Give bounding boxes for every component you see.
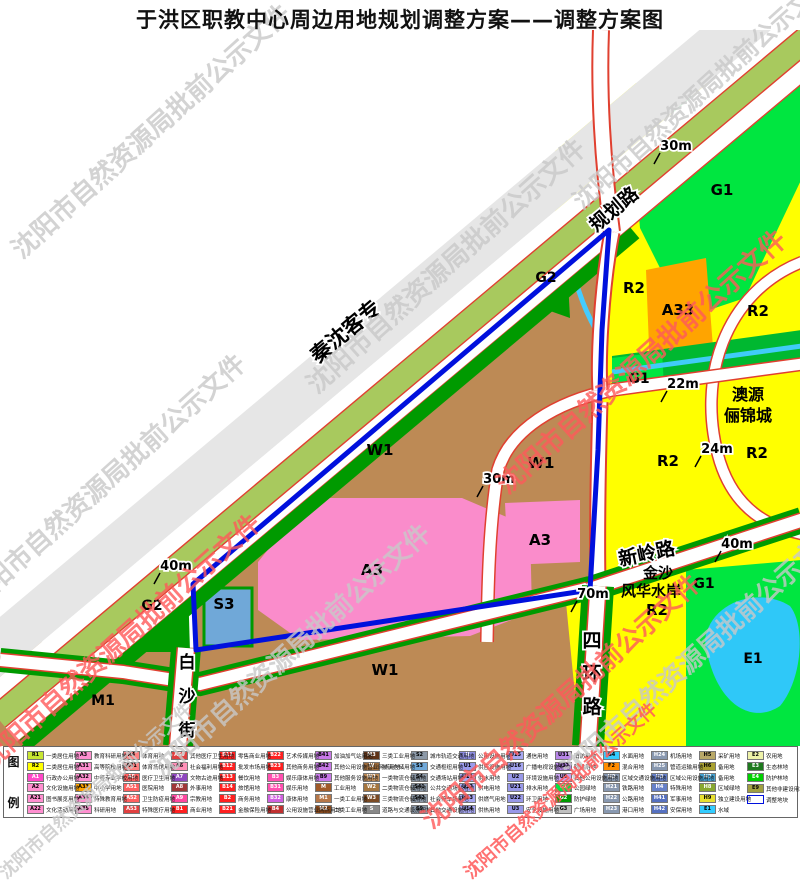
legend-entry-label: 文化活动用地: [46, 805, 79, 813]
legend-entry: A4体育用地: [123, 750, 171, 761]
legend-entry: H8区域绿地: [699, 782, 747, 793]
zone-label: S3: [213, 595, 234, 613]
legend-entry: A22文化活动用地: [27, 804, 75, 815]
legend-entry-label: 区域交通设施用地: [622, 773, 666, 781]
legend-entry-label: 军事用地: [670, 795, 692, 803]
legend-entry-label: 医院用地: [142, 784, 164, 792]
road-label: 四环路: [582, 630, 602, 718]
legend-entry: W2二类物流仓储用地: [363, 782, 411, 793]
legend-chip: A2: [27, 783, 44, 792]
legend-entry-label: 安保用地: [670, 805, 692, 813]
legend-entry-label: 旅馆用地: [238, 784, 260, 792]
legend-entry-label: 采矿用地: [718, 751, 740, 759]
legend-entry-label: 混合用地: [622, 762, 644, 770]
legend-chip: B3: [267, 773, 284, 782]
legend-entry: H22公路用地: [603, 793, 651, 804]
zone-label: G1: [711, 181, 734, 199]
zone-label: G1: [693, 576, 714, 592]
legend-entry: M1一类工业用地: [315, 793, 363, 804]
zone-label: A33: [662, 301, 694, 319]
legend-entry: U31消防用地: [555, 750, 603, 761]
legend-chip: E4: [747, 773, 764, 782]
legend-entry-label: 备用地: [718, 762, 735, 770]
legend-entry-label: 公用设施营业网点用地: [286, 805, 341, 813]
legend-entry: B14旅馆用地: [219, 782, 267, 793]
legend-entry: A2文化设施用地: [27, 782, 75, 793]
legend-chip: B31: [267, 783, 284, 792]
legend-entry-label: 通信用地: [526, 751, 548, 759]
legend-entry-label: 图书展览用地: [46, 795, 79, 803]
legend-entry: U22环卫用地: [507, 793, 555, 804]
legend-entry: B3娱乐康体用地: [267, 772, 315, 783]
legend-entry: E9其他非建设用地: [747, 783, 795, 794]
legend-columns: R1一类居住用地R2二类居住用地A1行政办公用地A2文化设施用地A21图书展览用…: [24, 747, 797, 817]
legend-entry-label: 三类工业用地: [382, 751, 415, 759]
legend-entry: H23港口用地: [603, 804, 651, 815]
legend-chip: E1: [699, 805, 716, 814]
legend-entry: W3三类物流仓储用地: [363, 793, 411, 804]
legend-column: B11零售商业用地B12批发市场用地B13餐饮用地B14旅馆用地B2商务用地B2…: [219, 750, 267, 815]
zone-label: 风华水岸: [621, 582, 681, 600]
legend-entry-label: 排水用地: [526, 784, 548, 792]
legend-entry-label: 独立建设用地: [718, 795, 751, 803]
zone-label: M1: [91, 693, 115, 709]
legend-entry-label: 水面用地: [622, 751, 644, 759]
legend-entry-label: 金融保险用地: [238, 805, 271, 813]
legend-entry-label: 宗教用地: [190, 795, 212, 803]
legend-entry: H9独立建设用地: [699, 793, 747, 804]
legend-entry-label: 体育用地: [142, 751, 164, 759]
legend-entry: R1一类居住用地: [27, 750, 75, 761]
legend-entry-label: 工业用地: [334, 784, 356, 792]
legend-entry: E3生态林地: [747, 761, 795, 772]
legend-entry-label: 供燃气用地: [478, 795, 506, 803]
legend-entry: A53特殊医疗用地: [123, 804, 171, 815]
legend-entry: E2农用地: [747, 750, 795, 761]
legend-chip: U2: [507, 773, 524, 782]
legend-chip: B32: [267, 794, 284, 803]
legend-entry-label: 批发市场用地: [238, 762, 271, 770]
legend-entry: B4公用设施营业网点用地: [267, 804, 315, 815]
legend-entry-label: 环卫用地: [526, 795, 548, 803]
legend-column: B22艺术传媒用地B23其他商务用地B3娱乐康体用地B31娱乐用地B32康体用地…: [267, 750, 315, 815]
legend-column: E2农用地E3生态林地E4防护林地E9其他非建设用地调整地块: [747, 750, 795, 815]
legend-entry: S道路与交通设施用地: [363, 804, 411, 815]
legend-entry-label: 加油加气站用地: [334, 751, 373, 759]
legend-entry-label: 中小学用地: [94, 784, 122, 792]
legend-entry-label: 文物古迹用地: [190, 773, 223, 781]
legend-entry: B9其他服务设施用地: [315, 772, 363, 783]
legend-chip: A59: [171, 751, 188, 760]
legend-entry: A33中小学用地: [75, 782, 123, 793]
legend-entry: B2商务用地: [219, 793, 267, 804]
dimension-label: 30m: [483, 472, 515, 487]
legend-entry: B41加油加气站用地: [315, 750, 363, 761]
legend-entry: A7文物古迹用地: [171, 772, 219, 783]
legend-entry-label: 防护林地: [766, 773, 788, 781]
legend-entry: M工业用地: [315, 782, 363, 793]
legend-chip: M: [315, 783, 332, 792]
dimension-label: 22m: [667, 377, 699, 392]
legend-entry-label: 二类居住用地: [46, 762, 79, 770]
legend-entry-label: 公用设施用地: [478, 751, 511, 759]
legend-entry-label: 社会福利用地: [190, 762, 223, 770]
legend-entry-label: 科研用地: [94, 805, 116, 813]
legend-entry: G1公园绿地: [555, 782, 603, 793]
legend-entry-label: 道路与交通设施用地: [382, 805, 432, 813]
legend-entry-label: 管道运输用地: [670, 762, 703, 770]
page-title: 于洪区职教中心周边用地规划调整方案——调整方案图: [0, 4, 800, 34]
zone-label: G2: [141, 598, 162, 614]
legend-column: R1一类居住用地R2二类居住用地A1行政办公用地A2文化设施用地A21图书展览用…: [27, 750, 75, 815]
legend-entry: G3广场用地: [555, 804, 603, 815]
zone-label: R2: [623, 279, 645, 297]
legend-entry-label: 区域公用设施用地: [670, 773, 714, 781]
legend-entry-label: 其他医疗卫生用地: [190, 751, 234, 759]
legend-entry: B22艺术传媒用地: [267, 750, 315, 761]
legend-entry: A41体育场馆用地: [123, 761, 171, 772]
legend-column: G4水面用地F2混合用地H2区域交通设施用地H21铁路用地H22公路用地H23港…: [603, 750, 651, 815]
legend-entry-label: 农用地: [766, 751, 783, 759]
legend-chip: R2: [27, 762, 44, 771]
legend-entry: U3安全设施用地: [507, 804, 555, 815]
legend-chip: A8: [171, 783, 188, 792]
legend-entry-label: 特殊用地: [670, 784, 692, 792]
legend-entry-label: 医疗卫生用地: [142, 773, 175, 781]
legend-entry: E4防护林地: [747, 772, 795, 783]
legend-entry-label: 行政办公用地: [46, 773, 79, 781]
zone-label: W1: [367, 441, 394, 459]
dimension-label: 70m: [577, 587, 609, 602]
legend-entry-label: 商业用地: [190, 805, 212, 813]
legend-chip: H42: [651, 805, 668, 814]
legend-chip: H4: [651, 783, 668, 792]
legend-chip: B2: [219, 794, 236, 803]
zone-label: A3: [529, 531, 551, 549]
zone-label: W1: [528, 454, 555, 472]
legend-entry-label: 康体用地: [286, 795, 308, 803]
legend-chip: E9: [747, 784, 764, 793]
legend-entry: H21铁路用地: [603, 782, 651, 793]
legend-entry-label: 一类工业用地: [334, 795, 367, 803]
legend-column: A4体育用地A41体育场馆用地A5医疗卫生用地A51医院用地A52卫生防疫用地A…: [123, 750, 171, 815]
legend-entry: G4水面用地: [603, 750, 651, 761]
legend-entry-label: 特殊医疗用地: [142, 805, 175, 813]
legend-chip: H22: [603, 794, 620, 803]
legend-chip: M1: [315, 794, 332, 803]
legend-chip: B21: [219, 805, 236, 814]
legend: 图 例 R1一类居住用地R2二类居住用地A1行政办公用地A2文化设施用地A21图…: [3, 746, 798, 818]
legend-entry: H42安保用地: [651, 804, 699, 815]
legend-entry: B1商业用地: [171, 804, 219, 815]
legend-entry-label: 中等专业学校用地: [94, 773, 138, 781]
legend-chip: H24: [651, 751, 668, 760]
legend-entry-label: 卫生防疫用地: [142, 795, 175, 803]
legend-chip: A53: [123, 805, 140, 814]
legend-entry: H24机场用地: [651, 750, 699, 761]
legend-chip: B14: [219, 783, 236, 792]
legend-entry-label: 其他交通设施用地: [430, 805, 474, 813]
legend-entry: A51医院用地: [123, 782, 171, 793]
zone-label: R2: [646, 601, 668, 619]
legend-entry-label: 一类物流仓储用地: [382, 773, 426, 781]
legend-column: A3教育科研用地A31高等院校用地A32中等专业学校用地A33中小学用地A34特…: [75, 750, 123, 815]
zone-label: 俪锦城: [724, 406, 772, 425]
legend-chip: W2: [363, 783, 380, 792]
legend-entry-label: 餐饮用地: [238, 773, 260, 781]
legend-entry: B12批发市场用地: [219, 761, 267, 772]
legend-column: A59其他医疗卫生用地A6社会福利用地A7文物古迹用地A8外事用地A9宗教用地B…: [171, 750, 219, 815]
legend-entry: A6社会福利用地: [171, 761, 219, 772]
legend-entry-label: 娱乐康体用地: [286, 773, 319, 781]
legend-entry-label: 娱乐用地: [286, 784, 308, 792]
legend-entry-label: 特殊教育用地: [94, 795, 127, 803]
legend-chip: E2: [747, 751, 764, 760]
legend-entry-label: 二类工业用地: [334, 805, 367, 813]
legend-entry: A59其他医疗卫生用地: [171, 750, 219, 761]
legend-entry: U1供应设施用地: [459, 761, 507, 772]
legend-entry-label: 外事用地: [190, 784, 212, 792]
legend-entry-label: 公园绿地: [574, 784, 596, 792]
legend-entry: A21图书展览用地: [27, 793, 75, 804]
legend-entry: U15通信用地: [507, 750, 555, 761]
legend-entry: A8外事用地: [171, 782, 219, 793]
legend-entry-label: 艺术传媒用地: [286, 751, 319, 759]
legend-entry: H41军事用地: [651, 793, 699, 804]
plan-sheet: 于洪区职教中心周边用地规划调整方案——调整方案图: [0, 0, 800, 821]
legend-chip: H21: [603, 783, 620, 792]
legend-chip: U31: [555, 751, 572, 760]
legend-entry: A31高等院校用地: [75, 761, 123, 772]
legend-entry: H6备用地: [699, 761, 747, 772]
legend-entry: A35科研用地: [75, 804, 123, 815]
legend-column: H24机场用地H25管道运输用地H3区域公用设施用地H4特殊用地H41军事用地H…: [651, 750, 699, 815]
legend-entry-label: 调整地块: [766, 795, 788, 803]
dimension-label: 24m: [701, 442, 733, 457]
legend-entry-label: 体育场馆用地: [142, 762, 175, 770]
legend-chip: E3: [747, 762, 764, 771]
legend-entry-label: 教育科研用地: [94, 751, 127, 759]
legend-entry-label: 一类居住用地: [46, 751, 79, 759]
legend-entry-label: 环境设施用地: [526, 773, 559, 781]
legend-entry: U11供水用地: [459, 772, 507, 783]
legend-entry-label: 公路用地: [622, 795, 644, 803]
legend-entry-label: 广播电视设施用地: [526, 762, 570, 770]
legend-entry-label: 其他服务设施用地: [334, 773, 378, 781]
legend-entry-label: 消防用地: [574, 751, 596, 759]
legend-entry: U21排水用地: [507, 782, 555, 793]
legend-entry: G2防护绿地: [555, 793, 603, 804]
legend-entry-label: 商务用地: [238, 795, 260, 803]
legend-entry: U2环境设施用地: [507, 772, 555, 783]
zone-label: R2: [746, 444, 768, 462]
legend-entry: A9宗教用地: [171, 793, 219, 804]
legend-entry: U9其他公用设施用地: [555, 772, 603, 783]
legend-entry-label: 铁路用地: [622, 784, 644, 792]
plan-map-svg: 规划路秦沈客专新岭路四环路白沙街G1R2A33R2G2G1R2R2W1W1A3A…: [0, 30, 800, 746]
legend-title: 图 例: [4, 747, 24, 817]
legend-chip: G4: [603, 751, 620, 760]
legend-entry: H5采矿用地: [699, 750, 747, 761]
dimension-label: 30m: [660, 139, 692, 154]
legend-chip: U21: [507, 783, 524, 792]
zone-label: 澳源: [732, 385, 764, 404]
legend-entry-label: 物流仓储用地: [382, 762, 415, 770]
legend-entry: U16广播电视设施用地: [507, 761, 555, 772]
legend-column: U15通信用地U16广播电视设施用地U2环境设施用地U21排水用地U22环卫用地…: [507, 750, 555, 815]
legend-chip: A51: [123, 783, 140, 792]
legend-entry: A1行政办公用地: [27, 772, 75, 783]
legend-entry-label: 备用地: [718, 773, 735, 781]
legend-entry: B21金融保险用地: [219, 804, 267, 815]
legend-entry-label: 港口用地: [622, 805, 644, 813]
legend-column: M3三类工业用地W物流仓储用地W1一类物流仓储用地W2二类物流仓储用地W3三类物…: [363, 750, 411, 815]
legend-entry-label: 水域: [718, 805, 729, 813]
road-label: 白沙街: [178, 652, 196, 741]
zone-label: E1: [743, 651, 762, 667]
legend-entry-label: 高等院校用地: [94, 762, 127, 770]
legend-entry-label: 其他非建设用地: [766, 784, 800, 792]
dimension-label: 40m: [160, 559, 192, 574]
zone-label: W1: [372, 661, 399, 679]
legend-entry-label: 二类物流仓储用地: [382, 784, 426, 792]
legend-entry-label: 社会停车场用地: [430, 795, 469, 803]
legend-entry-label: 区域绿地: [718, 784, 740, 792]
zone-label: R2: [657, 452, 679, 470]
legend-chip: G2: [555, 794, 572, 803]
legend-entry: B32康体用地: [267, 793, 315, 804]
legend-title-char: 图: [7, 753, 19, 770]
legend-entry-label: 其他商务用地: [286, 762, 319, 770]
legend-entry-label: 机场用地: [670, 751, 692, 759]
zone-label: 金沙: [642, 564, 673, 582]
legend-title-char: 例: [7, 794, 19, 811]
legend-entry: A34特殊教育用地: [75, 793, 123, 804]
legend-entry-label: 供热用地: [478, 805, 500, 813]
legend-entry: A32中等专业学校用地: [75, 772, 123, 783]
legend-entry: B42其他公用设施营业网点用地: [315, 761, 363, 772]
legend-entry: 调整地块: [747, 794, 795, 805]
legend-entry: B23其他商务用地: [267, 761, 315, 772]
legend-entry: S3交通枢纽用地: [411, 761, 459, 772]
legend-entry: A52卫生防疫用地: [123, 793, 171, 804]
legend-chip: U3: [507, 805, 524, 814]
legend-chip: G1: [555, 783, 572, 792]
legend-chip: U22: [507, 794, 524, 803]
legend-entry-label: 城市轨道交通用地: [430, 751, 474, 759]
legend-entry-label: 防护绿地: [574, 795, 596, 803]
legend-column: H5采矿用地H6备用地H7备用地H8区域绿地H9独立建设用地E1水域: [699, 750, 747, 815]
legend-chip: H8: [699, 783, 716, 792]
legend-entry-label: 供电用地: [478, 784, 500, 792]
legend-entry: R2二类居住用地: [27, 761, 75, 772]
legend-chip: H23: [603, 805, 620, 814]
zone-label: G2: [535, 270, 556, 286]
legend-chip: A21: [27, 794, 44, 803]
legend-entry: E1水域: [699, 804, 747, 815]
legend-entry-label: 交通场站用地: [430, 773, 463, 781]
legend-entry: S2城市轨道交通用地: [411, 750, 459, 761]
legend-column: U31消防用地U32防洪用地U9其他公用设施用地G1公园绿地G2防护绿地G3广场…: [555, 750, 603, 815]
legend-chip: H5: [699, 751, 716, 760]
legend-entry-label: 公共交通场站用地: [430, 784, 474, 792]
zone-label: R2: [747, 302, 769, 320]
legend-entry-label: 其他公用设施用地: [574, 773, 618, 781]
legend-entry-label: 供应设施用地: [478, 762, 511, 770]
zone-label: G1: [628, 371, 649, 387]
legend-chip: A22: [27, 805, 44, 814]
legend-entry-label: 广场用地: [574, 805, 596, 813]
legend-entry-label: 供水用地: [478, 773, 500, 781]
legend-entry-label: 生态林地: [766, 762, 788, 770]
legend-entry-label: 文化设施用地: [46, 784, 79, 792]
legend-chip: H9: [699, 794, 716, 803]
plan-map: 规划路秦沈客专新岭路四环路白沙街G1R2A33R2G2G1R2R2W1W1A3A…: [0, 30, 800, 746]
legend-entry: B13餐饮用地: [219, 772, 267, 783]
legend-entry: B31娱乐用地: [267, 782, 315, 793]
legend-entry: H4特殊用地: [651, 782, 699, 793]
legend-entry-label: 三类物流仓储用地: [382, 795, 426, 803]
zone-label: A3: [361, 561, 383, 579]
dimension-label: 40m: [721, 537, 753, 552]
legend-entry-label: 安全设施用地: [526, 805, 559, 813]
legend-entry-label: 零售商业用地: [238, 751, 271, 759]
legend-chip: H41: [651, 794, 668, 803]
legend-chip: A1: [27, 773, 44, 782]
legend-entry: A3教育科研用地: [75, 750, 123, 761]
legend-entry: H25管道运输用地: [651, 761, 699, 772]
legend-entry: F2混合用地: [603, 761, 651, 772]
legend-chip: R1: [27, 751, 44, 760]
legend-entry-label: 防洪用地: [574, 762, 596, 770]
legend-chip: H25: [651, 762, 668, 771]
legend-chip: F2: [603, 762, 620, 771]
legend-entry-label: 交通枢纽用地: [430, 762, 463, 770]
